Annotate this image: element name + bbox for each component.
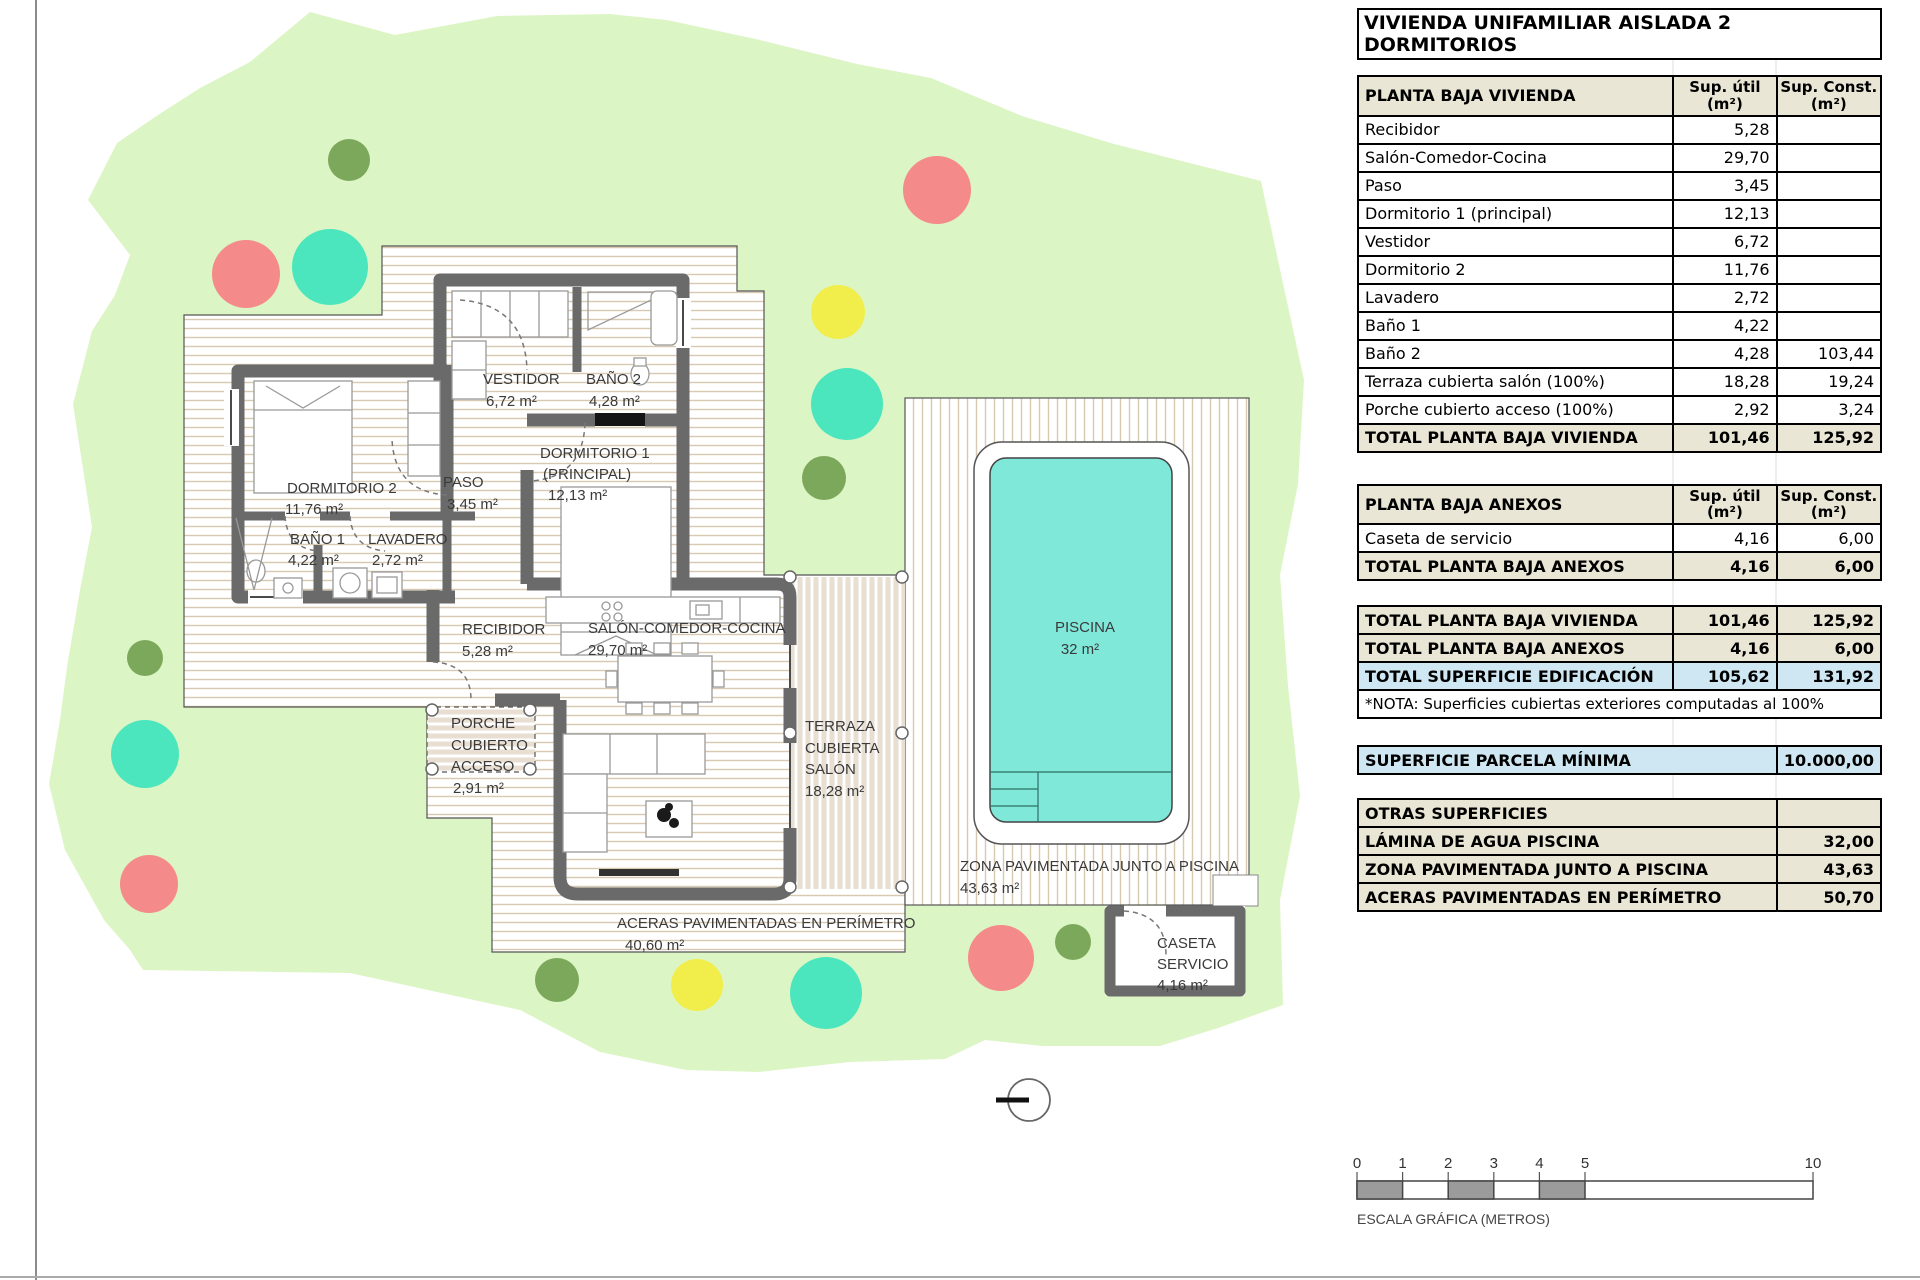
scale-bar-label: ESCALA GRÁFICA (METROS) bbox=[1357, 1211, 1550, 1227]
label-zona-pavimentada-area: 43,63 m² bbox=[960, 880, 1019, 897]
table-planta-baja-vivienda: PLANTA BAJA VIVIENDA Sup. útil(m²) Sup. … bbox=[1357, 75, 1882, 453]
label-terraza-1: TERRAZA bbox=[805, 718, 875, 735]
label-dormitorio1: DORMITORIO 1 bbox=[540, 445, 650, 462]
tree-turquoise bbox=[811, 368, 883, 440]
table-row: Dormitorio 1 (principal)12,13 bbox=[1358, 200, 1881, 228]
otras-header-row: OTRAS SUPERFICIES bbox=[1358, 799, 1881, 827]
table-row: ZONA PAVIMENTADA JUNTO A PISCINA43,63 bbox=[1358, 855, 1881, 883]
tree-green bbox=[535, 958, 579, 1002]
table-row: LÁMINA DE AGUA PISCINA32,00 bbox=[1358, 827, 1881, 855]
table-row: Dormitorio 211,76 bbox=[1358, 256, 1881, 284]
table-row: TOTAL PLANTA BAJA VIVIENDA101,46125,92 bbox=[1358, 606, 1881, 634]
label-vestidor: VESTIDOR bbox=[483, 371, 560, 388]
label-caseta-2: SERVICIO bbox=[1157, 956, 1228, 973]
label-dormitorio1-sub: (PRINCIPAL) bbox=[543, 466, 631, 483]
label-caseta-1: CASETA bbox=[1157, 935, 1216, 952]
label-bano2: BAÑO 2 bbox=[586, 371, 641, 388]
pool-water bbox=[990, 458, 1172, 822]
tree-red bbox=[212, 240, 280, 308]
table-row: TOTAL PLANTA BAJA ANEXOS4,166,00 bbox=[1358, 634, 1881, 662]
tree-red bbox=[968, 925, 1034, 991]
table-row: Recibidor5,28 bbox=[1358, 116, 1881, 144]
label-paso: PASO bbox=[443, 474, 484, 491]
table-row: Paso3,45 bbox=[1358, 172, 1881, 200]
label-recibidor-area: 5,28 m² bbox=[462, 643, 513, 660]
tree-green bbox=[802, 456, 846, 500]
nota-row: *NOTA: Superficies cubiertas exteriores … bbox=[1358, 690, 1881, 718]
surface-tables-panel: VIVIENDA UNIFAMILIAR AISLADA 2 DORMITORI… bbox=[1357, 8, 1882, 912]
scale-tick-1: 1 bbox=[1398, 1155, 1406, 1172]
label-aceras: ACERAS PAVIMENTADAS EN PERÍMETRO bbox=[617, 915, 915, 932]
table-row: Salón-Comedor-Cocina29,70 bbox=[1358, 144, 1881, 172]
table-row: Terraza cubierta salón (100%)18,2819,24 bbox=[1358, 368, 1881, 396]
tree-turquoise bbox=[292, 229, 368, 305]
label-piscina: PISCINA bbox=[1055, 619, 1115, 636]
col-sup-const: Sup. Const.(m²) bbox=[1777, 76, 1881, 116]
label-recibidor: RECIBIDOR bbox=[462, 621, 546, 638]
tree-green bbox=[127, 640, 163, 676]
tree-green bbox=[1055, 924, 1091, 960]
tree-turquoise bbox=[790, 957, 862, 1029]
label-bano1: BAÑO 1 bbox=[290, 531, 345, 548]
tree-green bbox=[328, 139, 370, 181]
table1-header: PLANTA BAJA VIVIENDA bbox=[1358, 76, 1673, 116]
label-vestidor-area: 6,72 m² bbox=[486, 393, 537, 410]
tree-red bbox=[120, 855, 178, 913]
table1-total-row: TOTAL PLANTA BAJA VIVIENDA101,46125,92 bbox=[1358, 424, 1881, 452]
survey-point-symbol bbox=[996, 1079, 1050, 1121]
label-lavadero: LAVADERO bbox=[368, 531, 447, 548]
table-totals: TOTAL PLANTA BAJA VIVIENDA101,46125,92 T… bbox=[1357, 605, 1882, 719]
table-otras-superficies: OTRAS SUPERFICIES LÁMINA DE AGUA PISCINA… bbox=[1357, 798, 1882, 912]
label-terraza-2: CUBIERTA bbox=[805, 740, 879, 757]
scale-tick-2: 2 bbox=[1444, 1155, 1452, 1172]
scale-tick-10: 10 bbox=[1805, 1155, 1822, 1172]
scale-tick-0: 0 bbox=[1353, 1155, 1361, 1172]
tree-red bbox=[903, 156, 971, 224]
parcela-row: SUPERFICIE PARCELA MÍNIMA 10.000,00 bbox=[1358, 746, 1881, 774]
label-dormitorio2: DORMITORIO 2 bbox=[287, 480, 397, 497]
table2-total-row: TOTAL PLANTA BAJA ANEXOS4,166,00 bbox=[1358, 552, 1881, 580]
table-row: Porche cubierto acceso (100%)2,923,24 bbox=[1358, 396, 1881, 424]
label-lavadero-area: 2,72 m² bbox=[372, 552, 423, 569]
label-aceras-area: 40,60 m² bbox=[625, 937, 684, 954]
label-dormitorio2-area: 11,76 m² bbox=[285, 501, 343, 518]
table-row: Caseta de servicio4,166,00 bbox=[1358, 524, 1881, 552]
label-porche-area: 2,91 m² bbox=[453, 780, 504, 797]
label-terraza-3: SALÓN bbox=[805, 761, 856, 778]
tree-yellow bbox=[671, 959, 723, 1011]
label-bano1-area: 4,22 m² bbox=[288, 552, 339, 569]
table-planta-baja-anexos: PLANTA BAJA ANEXOS Sup. útil(m²) Sup. Co… bbox=[1357, 484, 1882, 582]
col-sup-util: Sup. útil(m²) bbox=[1673, 76, 1776, 116]
table-row: Baño 14,22 bbox=[1358, 312, 1881, 340]
col-sup-util: Sup. útil(m²) bbox=[1673, 485, 1776, 525]
col-sup-const: Sup. Const.(m²) bbox=[1777, 485, 1881, 525]
scale-tick-3: 3 bbox=[1490, 1155, 1498, 1172]
sheet-title: VIVIENDA UNIFAMILIAR AISLADA 2 DORMITORI… bbox=[1357, 8, 1882, 60]
label-porche-3: ACCESO bbox=[451, 758, 514, 775]
scale-tick-5: 5 bbox=[1581, 1155, 1589, 1172]
scale-bar: 0 1 2 3 4 5 10 ESCALA GRÁFICA (METROS) bbox=[1353, 1155, 1822, 1227]
label-porche-2: CUBIERTO bbox=[451, 737, 528, 754]
label-bano2-area: 4,28 m² bbox=[589, 393, 640, 410]
total-superficie-row: TOTAL SUPERFICIE EDIFICACIÓN105,62131,92 bbox=[1358, 662, 1881, 690]
table-row: Vestidor6,72 bbox=[1358, 228, 1881, 256]
table-row: ACERAS PAVIMENTADAS EN PERÍMETRO50,70 bbox=[1358, 883, 1881, 911]
label-terraza-area: 18,28 m² bbox=[805, 783, 864, 800]
table-row: Baño 24,28103,44 bbox=[1358, 340, 1881, 368]
label-piscina-area: 32 m² bbox=[1061, 641, 1099, 658]
label-dormitorio1-area: 12,13 m² bbox=[548, 487, 607, 504]
scale-tick-4: 4 bbox=[1535, 1155, 1543, 1172]
site-plan-sheet: DORMITORIO 2 11,76 m² BAÑO 1 4,22 m² LAV… bbox=[0, 0, 1920, 1280]
tree-yellow bbox=[811, 285, 865, 339]
table2-header: PLANTA BAJA ANEXOS bbox=[1358, 485, 1673, 525]
label-zona-pavimentada: ZONA PAVIMENTADA JUNTO A PISCINA bbox=[960, 858, 1239, 875]
label-paso-area: 3,45 m² bbox=[447, 496, 498, 513]
table-header-row: PLANTA BAJA VIVIENDA Sup. útil(m²) Sup. … bbox=[1358, 76, 1881, 116]
label-caseta-area: 4,16 m² bbox=[1157, 977, 1208, 994]
label-salon: SALÓN-COMEDOR-COCINA bbox=[588, 620, 786, 637]
label-porche-1: PORCHE bbox=[451, 715, 515, 732]
table-row: Lavadero2,72 bbox=[1358, 284, 1881, 312]
tree-turquoise bbox=[111, 720, 179, 788]
label-salon-area: 29,70 m² bbox=[588, 642, 647, 659]
table-header-row: PLANTA BAJA ANEXOS Sup. útil(m²) Sup. Co… bbox=[1358, 485, 1881, 525]
table-parcela-minima: SUPERFICIE PARCELA MÍNIMA 10.000,00 bbox=[1357, 745, 1882, 775]
